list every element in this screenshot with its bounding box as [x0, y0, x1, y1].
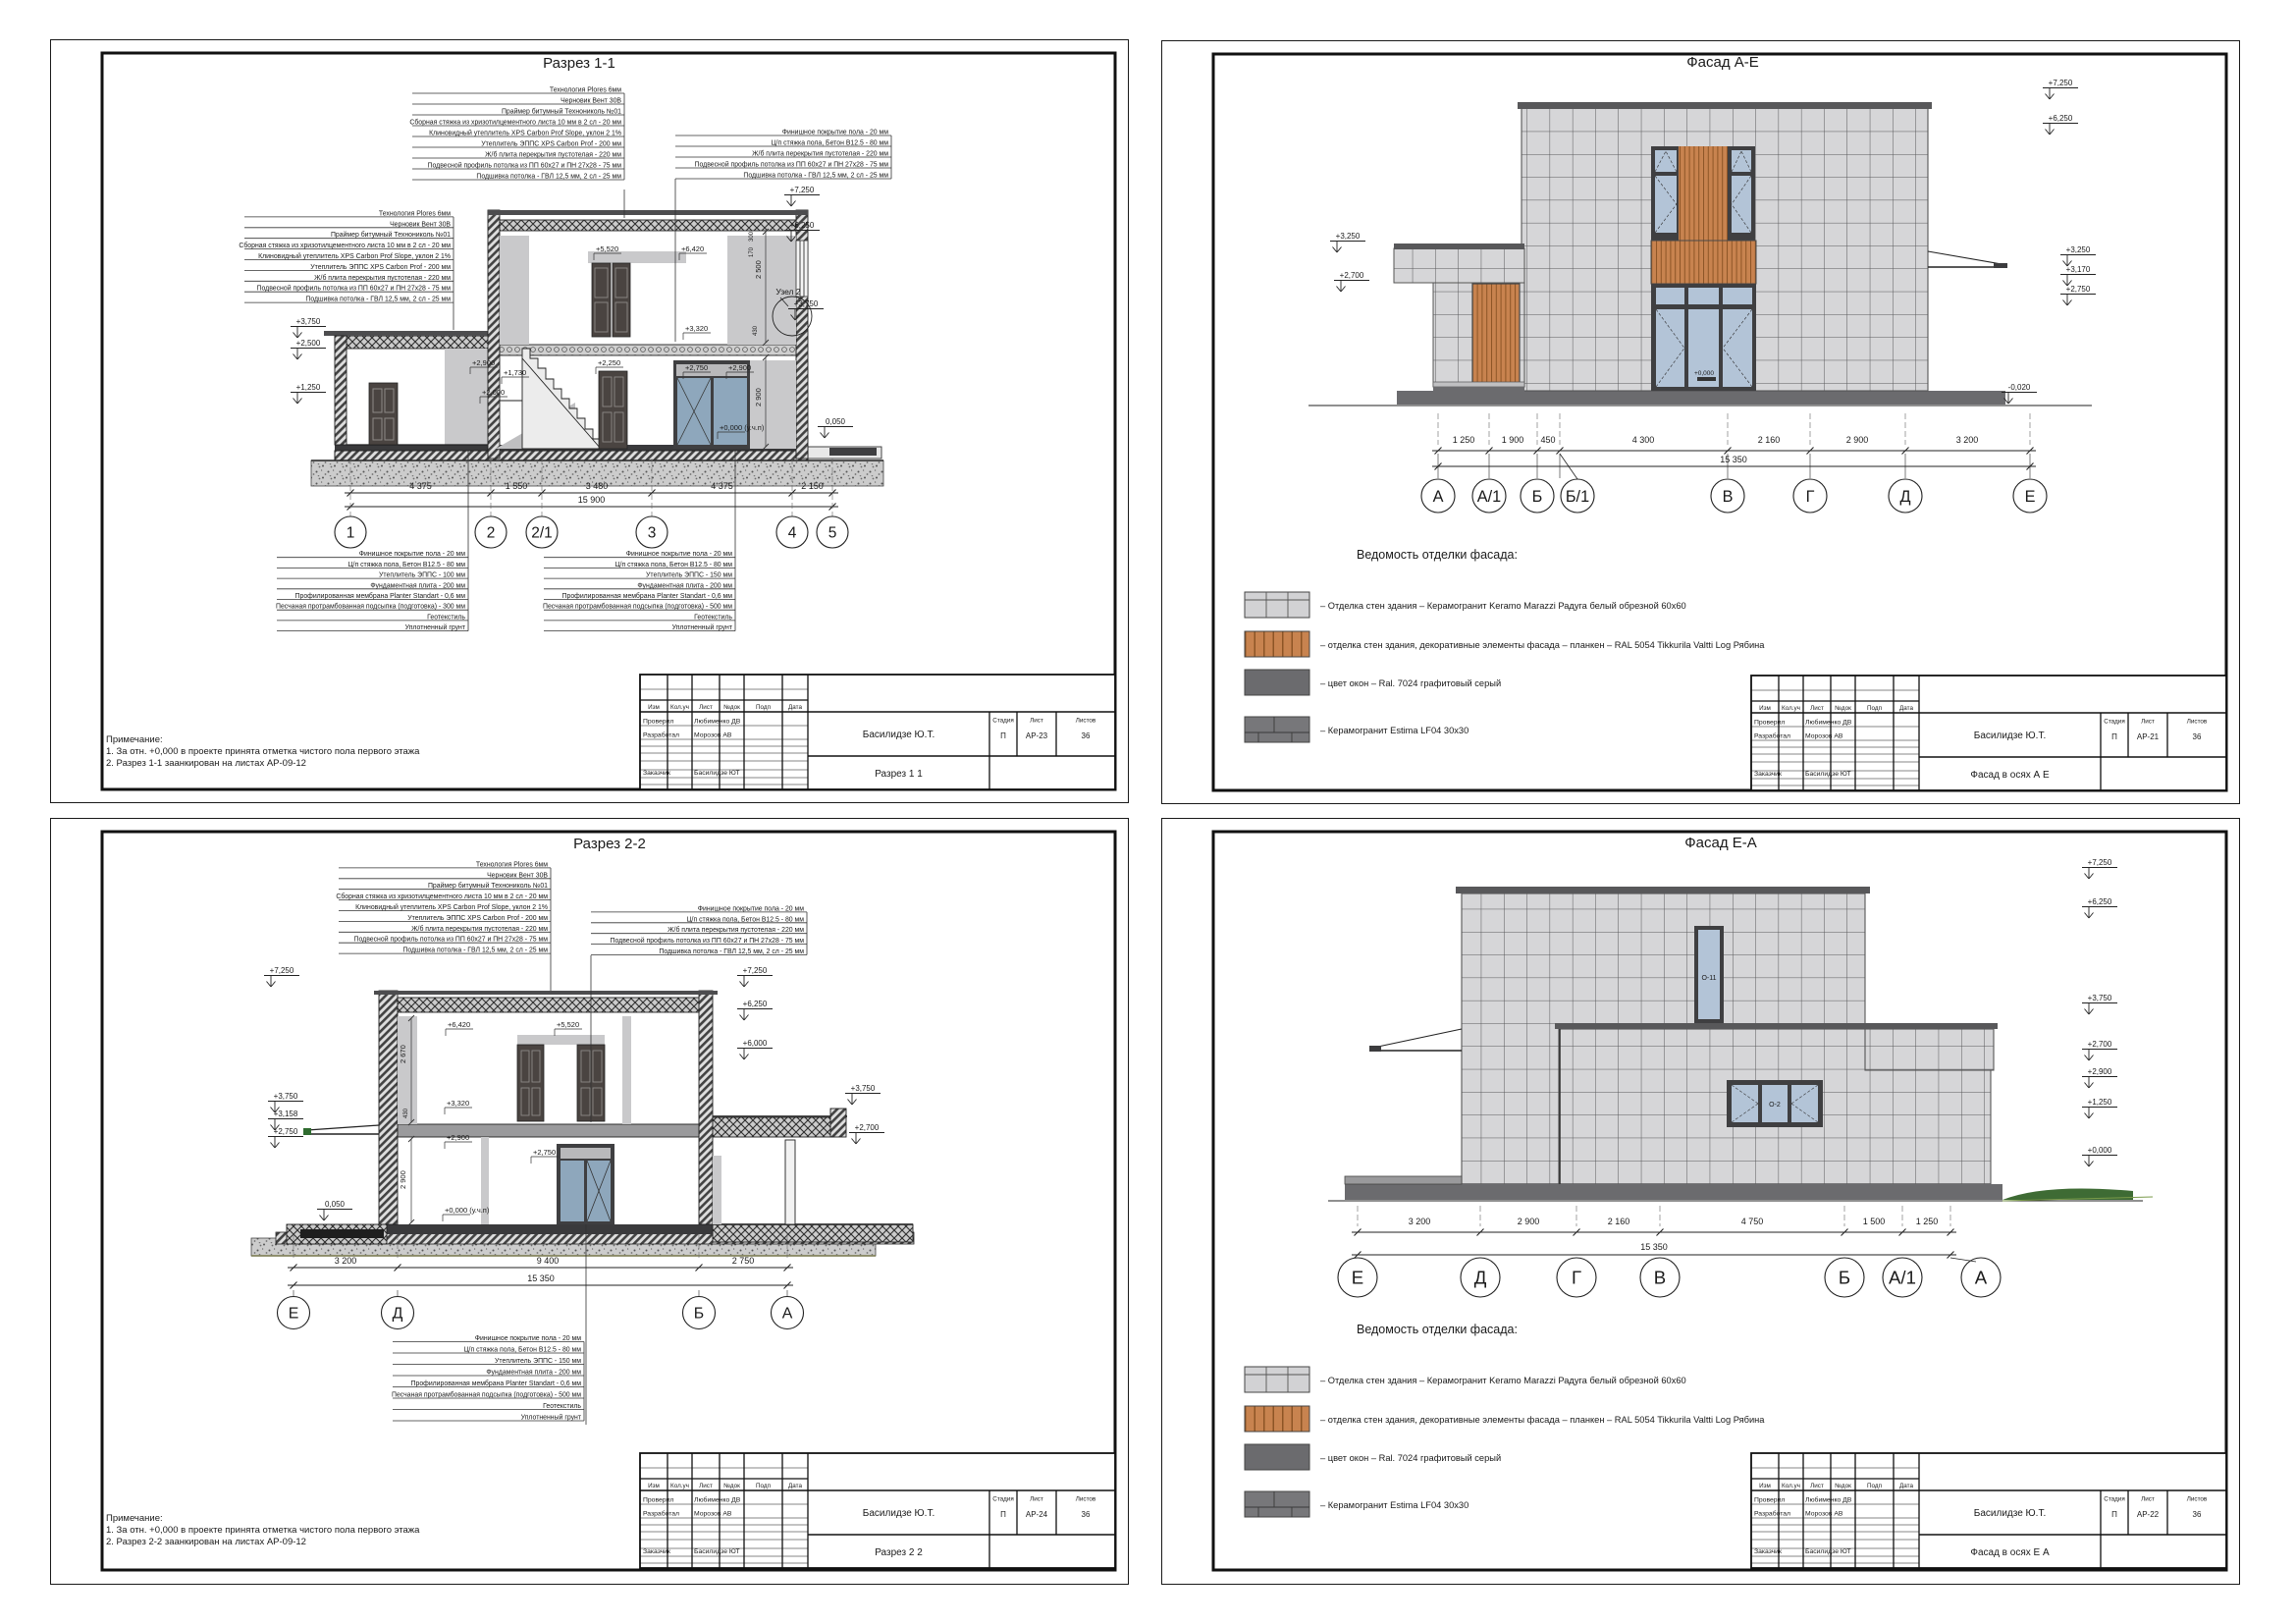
svg-text:1 550: 1 550 [506, 481, 528, 491]
svg-text:Узел 2: Узел 2 [775, 287, 800, 297]
svg-text:+2,750: +2,750 [685, 363, 708, 372]
svg-text:Басилидзе ЮТ: Басилидзе ЮТ [1805, 1548, 1851, 1555]
svg-text:Сборная стяжка из хризотилцеме: Сборная стяжка из хризотилцементного лис… [409, 119, 621, 127]
svg-text:Фасад в осях Е А: Фасад в осях Е А [1970, 1547, 2050, 1558]
svg-text:Лист: Лист [1030, 718, 1043, 725]
svg-text:1. За отн. +0,000 в проекте пр: 1. За отн. +0,000 в проекте принята отме… [106, 1525, 420, 1536]
svg-text:О-11: О-11 [1701, 975, 1716, 982]
svg-text:2 150: 2 150 [801, 481, 824, 491]
svg-text:Разрез 2-2: Разрез 2-2 [573, 836, 646, 852]
svg-text:+2,900: +2,900 [2088, 1067, 2112, 1076]
svg-text:Подшивка потолка - ГВЛ 12,5 мм: Подшивка потолка - ГВЛ 12,5 мм, 2 сл - 2… [305, 297, 451, 303]
svg-text:Стадия: Стадия [992, 718, 1013, 725]
svg-text:АР-24: АР-24 [1026, 1510, 1048, 1519]
svg-text:Морозов АВ: Морозов АВ [694, 1511, 732, 1518]
svg-text:АР-21: АР-21 [2137, 732, 2160, 741]
svg-text:4: 4 [788, 525, 797, 542]
svg-text:Листов: Листов [2187, 1496, 2208, 1503]
svg-text:Любименко ДВ: Любименко ДВ [694, 1496, 741, 1504]
svg-text:Разрез 1 1: Разрез 1 1 [875, 769, 923, 780]
svg-text:П: П [1000, 731, 1006, 740]
svg-text:Разрез 2 2: Разрез 2 2 [875, 1547, 923, 1558]
svg-text:15 350: 15 350 [527, 1273, 555, 1283]
svg-text:Листов: Листов [1076, 1496, 1096, 1503]
svg-text:Фасад Е-А: Фасад Е-А [1684, 835, 1757, 851]
svg-text:+3,750: +3,750 [296, 317, 321, 326]
svg-text:Финишное покрытие пола - 20 мм: Финишное покрытие пола - 20 мм [698, 905, 804, 912]
svg-text:+2,750: +2,750 [274, 1127, 298, 1136]
svg-text:2 900: 2 900 [754, 388, 763, 406]
svg-text:3 480: 3 480 [586, 481, 609, 491]
svg-text:– отделка стен здания, декорат: – отделка стен здания, декоративные элем… [1320, 640, 1765, 650]
svg-text:Разработал: Разработал [643, 731, 679, 739]
svg-text:Проверил: Проверил [1754, 720, 1785, 727]
svg-text:Подшивка потолка - ГВЛ 12,5 мм: Подшивка потолка - ГВЛ 12,5 мм, 2 сл - 2… [659, 948, 804, 955]
svg-text:Заказчик: Заказчик [643, 770, 670, 777]
svg-text:430: 430 [403, 1108, 409, 1118]
svg-text:Кол.уч: Кол.уч [670, 704, 689, 711]
svg-text:36: 36 [2193, 732, 2202, 741]
svg-text:Дата: Дата [788, 704, 802, 711]
svg-text:2. Разрез 1-1 заанкирован на л: 2. Разрез 1-1 заанкирован на листах АР-0… [106, 758, 306, 769]
svg-text:2 160: 2 160 [1758, 435, 1781, 445]
svg-text:4 375: 4 375 [711, 481, 733, 491]
svg-text:+6,420: +6,420 [448, 1020, 470, 1029]
svg-text:Б/1: Б/1 [1566, 488, 1589, 506]
svg-text:+7,250: +7,250 [270, 966, 294, 975]
svg-text:+1,250: +1,250 [296, 383, 321, 392]
svg-text:1 500: 1 500 [1863, 1217, 1886, 1226]
svg-text:1: 1 [347, 525, 355, 542]
svg-text:+3,250: +3,250 [2066, 245, 2091, 254]
svg-text:Разработал: Разработал [1754, 732, 1790, 740]
svg-text:– цвет окон – Ral. 7024 графит: – цвет окон – Ral. 7024 графитовый серый [1320, 678, 1501, 688]
svg-text:Изм: Изм [648, 1483, 660, 1489]
svg-text:Финишное покрытие пола - 20 мм: Финишное покрытие пола - 20 мм [626, 551, 732, 558]
svg-text:Праймер битумный Технониколь №: Праймер битумный Технониколь №01 [428, 882, 548, 890]
svg-text:– Отделка стен здания – Керамо: – Отделка стен здания – Керамогранит Ker… [1320, 1376, 1686, 1385]
svg-text:Черновик Вент 30В: Черновик Вент 30В [561, 98, 621, 105]
svg-text:Геотекстиль: Геотекстиль [543, 1403, 581, 1410]
svg-text:Подп: Подп [756, 1483, 771, 1489]
svg-text:Е: Е [2025, 488, 2036, 506]
svg-text:Ж/б плита перекрытия пустотела: Ж/б плита перекрытия пустотелая - 220 мм [314, 274, 451, 282]
svg-text:Лист: Лист [699, 1483, 713, 1489]
svg-text:№док: №док [723, 704, 740, 711]
svg-text:9 400: 9 400 [537, 1256, 560, 1266]
svg-text:О-2: О-2 [1769, 1102, 1781, 1109]
svg-text:Утеплитель ЭППС - 150 мм: Утеплитель ЭППС - 150 мм [646, 572, 732, 579]
svg-text:Фундаментная плита - 200 мм: Фундаментная плита - 200 мм [637, 582, 732, 589]
svg-text:Технология Plores 6мм: Технология Plores 6мм [476, 861, 548, 868]
svg-text:Профилированная мембрана Plant: Профилированная мембрана Planter Standar… [562, 592, 733, 600]
svg-text:Кол.уч: Кол.уч [670, 1483, 689, 1489]
svg-text:Геотекстиль: Геотекстиль [694, 614, 732, 621]
svg-text:Фасад в осях А Е: Фасад в осях А Е [1970, 770, 2050, 781]
svg-text:Финишное покрытие пола - 20 мм: Финишное покрытие пола - 20 мм [782, 130, 888, 136]
svg-text:+2,700: +2,700 [855, 1123, 880, 1132]
svg-text:АР-23: АР-23 [1026, 731, 1048, 740]
svg-text:Примечание:: Примечание: [106, 734, 163, 745]
svg-text:Уплотненный грунт: Уплотненный грунт [672, 623, 733, 631]
svg-text:Морозов АВ: Морозов АВ [1805, 733, 1843, 740]
svg-text:Ж/б плита перекрытия пустотела: Ж/б плита перекрытия пустотелая - 220 мм [752, 150, 888, 158]
svg-text:2 900: 2 900 [1518, 1217, 1540, 1226]
svg-text:Разрез 1-1: Разрез 1-1 [543, 55, 615, 72]
svg-text:+2,250: +2,250 [598, 358, 620, 367]
svg-text:2: 2 [487, 525, 496, 542]
svg-text:– цвет окон – Ral. 7024 графит: – цвет окон – Ral. 7024 графитовый серый [1320, 1453, 1501, 1463]
svg-text:3 200: 3 200 [335, 1256, 357, 1266]
svg-text:15 900: 15 900 [578, 495, 606, 505]
svg-text:Заказчик: Заказчик [1754, 771, 1782, 778]
svg-text:Кол.уч: Кол.уч [1782, 705, 1800, 712]
svg-text:+3,320: +3,320 [685, 324, 708, 333]
svg-text:Басилидзе ЮТ: Басилидзе ЮТ [694, 1548, 740, 1555]
svg-text:Примечание:: Примечание: [106, 1513, 163, 1524]
svg-text:Ведомость отделки фасада:: Ведомость отделки фасада: [1357, 1323, 1518, 1336]
svg-text:+3,750: +3,750 [274, 1092, 298, 1101]
svg-text:Е: Е [1352, 1268, 1363, 1288]
svg-text:+0,000 (у.ч.п): +0,000 (у.ч.п) [720, 423, 765, 432]
svg-text:36: 36 [1082, 731, 1091, 740]
svg-text:+2,000: +2,000 [482, 388, 505, 397]
svg-text:+2,900: +2,900 [728, 363, 751, 372]
svg-text:Ц/п стяжка пола, Бетон В12.5 -: Ц/п стяжка пола, Бетон В12.5 - 80 мм [771, 140, 888, 147]
svg-text:Сборная стяжка из хризотилцеме: Сборная стяжка из хризотилцементного лис… [336, 893, 548, 900]
svg-text:Песчаная протрамбованная подсы: Песчаная протрамбованная подсыпка (подго… [392, 1391, 581, 1399]
svg-text:2. Разрез 2-2 заанкирован на л: 2. Разрез 2-2 заанкирован на листах АР-0… [106, 1537, 306, 1547]
svg-text:Ж/б плита перекрытия пустотела: Ж/б плита перекрытия пустотелая - 220 мм [485, 151, 621, 159]
svg-text:В: В [1723, 488, 1734, 506]
svg-text:Изм: Изм [1759, 705, 1771, 712]
svg-text:+3,750: +3,750 [851, 1084, 876, 1093]
svg-text:Клиновидный утеплитель XPS Car: Клиновидный утеплитель XPS Carbon Prof S… [429, 130, 621, 137]
svg-text:+2,700: +2,700 [2088, 1040, 2112, 1049]
svg-text:Басилидзе ЮТ: Басилидзе ЮТ [1805, 771, 1851, 778]
svg-text:Г: Г [1572, 1268, 1581, 1288]
svg-text:+2,500: +2,500 [296, 339, 321, 348]
svg-text:Любименко ДВ: Любименко ДВ [694, 718, 741, 726]
svg-text:Финишное покрытие пола - 20 мм: Финишное покрытие пола - 20 мм [359, 551, 465, 558]
svg-text:Лист: Лист [2141, 1496, 2155, 1503]
svg-text:Финишное покрытие пола - 20 мм: Финишное покрытие пола - 20 мм [475, 1335, 581, 1342]
svg-text:+6,250: +6,250 [2049, 114, 2073, 123]
svg-text:Утеплитель ЭППС - 100 мм: Утеплитель ЭППС - 100 мм [379, 572, 465, 579]
svg-text:Стадия: Стадия [992, 1496, 1013, 1503]
svg-text:Подп: Подп [1867, 1483, 1882, 1489]
svg-text:Басилидзе Ю.Т.: Басилидзе Ю.Т. [863, 1508, 934, 1519]
svg-text:Клиновидный утеплитель XPS Car: Клиновидный утеплитель XPS Carbon Prof S… [258, 252, 451, 260]
svg-text:1 250: 1 250 [1916, 1217, 1939, 1226]
svg-text:Лист: Лист [699, 704, 713, 711]
svg-text:Черновик Вент 30В: Черновик Вент 30В [390, 221, 451, 228]
svg-text:Дата: Дата [788, 1483, 802, 1489]
svg-text:Утеплитель ЭППС XPS Carbon Pro: Утеплитель ЭППС XPS Carbon Prof - 200 мм [310, 264, 451, 271]
svg-text:А/1: А/1 [1889, 1268, 1916, 1288]
svg-text:Фундаментная плита - 200 мм: Фундаментная плита - 200 мм [486, 1370, 581, 1377]
svg-text:Подп: Подп [756, 704, 771, 711]
svg-text:А: А [782, 1306, 793, 1323]
svg-text:П: П [2111, 1510, 2117, 1519]
svg-text:Разработал: Разработал [643, 1510, 679, 1518]
svg-text:Подшивка потолка - ГВЛ 12,5 мм: Подшивка потолка - ГВЛ 12,5 мм, 2 сл - 2… [743, 173, 888, 180]
svg-text:+7,250: +7,250 [2088, 858, 2112, 867]
svg-text:Ц/п стяжка пола, Бетон В12.5 -: Ц/п стяжка пола, Бетон В12.5 - 80 мм [686, 916, 804, 923]
svg-text:+7,250: +7,250 [743, 966, 768, 975]
svg-text:Лист: Лист [2141, 719, 2155, 726]
svg-text:Праймер битумный Технониколь №: Праймер битумный Технониколь №01 [502, 108, 621, 116]
svg-text:3 200: 3 200 [1409, 1217, 1431, 1226]
svg-text:Е: Е [289, 1306, 299, 1323]
svg-text:Басилидзе Ю.Т.: Басилидзе Ю.Т. [1974, 1508, 2046, 1519]
svg-text:Уплотненный грунт: Уплотненный грунт [521, 1414, 582, 1422]
svg-text:Разработал: Разработал [1754, 1510, 1790, 1518]
svg-text:4 375: 4 375 [409, 481, 432, 491]
svg-text:+6,420: +6,420 [681, 244, 704, 253]
svg-text:+0,000: +0,000 [1694, 370, 1714, 377]
svg-text:Ж/б плита перекрытия пустотела: Ж/б плита перекрытия пустотелая - 220 мм [667, 926, 804, 934]
svg-text:П: П [2111, 732, 2117, 741]
svg-text:Листов: Листов [1076, 718, 1096, 725]
svg-text:Заказчик: Заказчик [643, 1548, 670, 1555]
svg-text:Стадия: Стадия [2104, 719, 2124, 726]
svg-text:Д: Д [1474, 1268, 1487, 1288]
svg-text:Изм: Изм [1759, 1483, 1771, 1489]
svg-text:А: А [1433, 488, 1444, 506]
svg-text:Лист: Лист [1810, 705, 1824, 712]
svg-text:Изм: Изм [648, 704, 660, 711]
svg-text:170: 170 [749, 246, 755, 257]
svg-text:Д: Д [1899, 488, 1910, 506]
svg-text:Ц/п стяжка пола, Бетон В12.5 -: Ц/п стяжка пола, Бетон В12.5 - 80 мм [463, 1347, 581, 1354]
svg-text:+3,158: +3,158 [274, 1110, 298, 1118]
svg-text:-0,020: -0,020 [2008, 383, 2031, 392]
svg-text:+2,700: +2,700 [1340, 271, 1364, 280]
svg-text:Ц/п стяжка пола, Бетон В12.5 -: Ц/п стяжка пола, Бетон В12.5 - 80 мм [347, 562, 465, 568]
svg-text:+3,250: +3,250 [1336, 232, 1361, 241]
svg-text:2 500: 2 500 [754, 260, 763, 279]
svg-text:+5,520: +5,520 [557, 1020, 579, 1029]
svg-text:Лист: Лист [1030, 1496, 1043, 1503]
svg-text:Клиновидный утеплитель XPS Car: Клиновидный утеплитель XPS Carbon Prof S… [355, 903, 548, 911]
svg-text:Б: Б [1839, 1268, 1850, 1288]
svg-text:Любименко ДВ: Любименко ДВ [1805, 719, 1852, 727]
svg-text:+2,900: +2,900 [447, 1133, 469, 1142]
svg-text:Черновик Вент 30В: Черновик Вент 30В [487, 872, 548, 879]
svg-text:Сборная стяжка из хризотилцеме: Сборная стяжка из хризотилцементного лис… [239, 242, 451, 249]
svg-text:Песчаная протрамбованная подсы: Песчаная протрамбованная подсыпка (подго… [543, 603, 732, 611]
svg-text:+6,000: +6,000 [743, 1039, 768, 1048]
svg-text:+3,170: +3,170 [2066, 265, 2091, 274]
svg-text:А/1: А/1 [1477, 488, 1501, 506]
svg-text:+0,000: +0,000 [2088, 1146, 2112, 1155]
svg-text:Подвесной профиль потолка из П: Подвесной профиль потолка из ПП 60х27 и … [257, 285, 452, 293]
svg-text:Дата: Дата [1899, 1483, 1913, 1489]
svg-text:Фундаментная плита - 200 мм: Фундаментная плита - 200 мм [370, 582, 465, 589]
svg-text:П: П [1000, 1510, 1006, 1519]
svg-text:Подшивка потолка - ГВЛ 12,5 мм: Подшивка потолка - ГВЛ 12,5 мм, 2 сл - 2… [402, 947, 548, 954]
svg-text:Г: Г [1806, 488, 1815, 506]
svg-text:Проверил: Проверил [643, 719, 673, 726]
svg-text:№док: №док [1835, 705, 1851, 712]
svg-text:Ведомость отделки фасада:: Ведомость отделки фасада: [1357, 548, 1518, 562]
svg-text:36: 36 [2193, 1510, 2202, 1519]
svg-text:+2,900: +2,900 [472, 358, 495, 367]
svg-text:Утеплитель ЭППС XPS Carbon Pro: Утеплитель ЭППС XPS Carbon Prof - 200 мм [481, 141, 621, 148]
svg-text:2 900: 2 900 [1846, 435, 1869, 445]
svg-text:Любименко ДВ: Любименко ДВ [1805, 1496, 1852, 1504]
svg-text:2/1: 2/1 [531, 525, 553, 542]
svg-text:0,050: 0,050 [826, 417, 846, 426]
svg-text:Проверил: Проверил [1754, 1497, 1785, 1504]
svg-text:300: 300 [749, 231, 755, 242]
svg-text:2 670: 2 670 [399, 1045, 407, 1063]
svg-text:Подвесной профиль потолка из П: Подвесной профиль потолка из ПП 60х27 и … [428, 162, 622, 170]
svg-text:Листов: Листов [2187, 719, 2208, 726]
svg-text:– Керамогранит Estima LF04 30х: – Керамогранит Estima LF04 30х30 [1320, 1500, 1468, 1510]
svg-text:Подвесной профиль потолка из П: Подвесной профиль потолка из ПП 60х27 и … [611, 937, 805, 945]
svg-text:+2,750: +2,750 [2066, 285, 2091, 294]
svg-text:Морозов АВ: Морозов АВ [1805, 1511, 1843, 1518]
svg-text:2 160: 2 160 [1608, 1217, 1630, 1226]
svg-text:+6,250: +6,250 [2088, 897, 2112, 906]
svg-text:430: 430 [753, 325, 759, 336]
svg-text:Ж/б плита перекрытия пустотела: Ж/б плита перекрытия пустотелая - 220 мм [411, 925, 548, 933]
svg-text:Песчаная протрамбованная подсы: Песчаная протрамбованная подсыпка (подго… [276, 603, 465, 611]
svg-text:Басилидзе Ю.Т.: Басилидзе Ю.Т. [1974, 731, 2046, 741]
svg-text:Басилидзе ЮТ: Басилидзе ЮТ [694, 770, 740, 777]
svg-text:Проверил: Проверил [643, 1497, 673, 1504]
svg-text:0,050: 0,050 [325, 1200, 346, 1209]
svg-text:36: 36 [1082, 1510, 1091, 1519]
svg-text:+3,750: +3,750 [2088, 994, 2112, 1002]
svg-text:Дата: Дата [1899, 705, 1913, 712]
svg-text:1 250: 1 250 [1453, 435, 1475, 445]
svg-text:Морозов АВ: Морозов АВ [694, 732, 732, 739]
svg-text:15 350: 15 350 [1720, 455, 1747, 464]
svg-text:2 750: 2 750 [732, 1256, 755, 1266]
svg-text:Лист: Лист [1810, 1483, 1824, 1489]
svg-text:Кол.уч: Кол.уч [1782, 1483, 1800, 1489]
svg-text:№док: №док [1835, 1483, 1851, 1489]
svg-text:Уплотненный грунт: Уплотненный грунт [405, 623, 466, 631]
svg-text:Технология Plores 6мм: Технология Plores 6мм [379, 210, 451, 217]
svg-text:+6,250: +6,250 [743, 1000, 768, 1008]
svg-text:Басилидзе Ю.Т.: Басилидзе Ю.Т. [863, 730, 934, 740]
svg-text:1 900: 1 900 [1502, 435, 1524, 445]
svg-text:15 350: 15 350 [1640, 1242, 1668, 1252]
svg-text:А: А [1975, 1268, 1988, 1288]
svg-text:Профилированная мембрана Plant: Профилированная мембрана Planter Standar… [295, 592, 466, 600]
svg-text:1. За отн. +0,000 в проекте пр: 1. За отн. +0,000 в проекте принята отме… [106, 746, 420, 757]
svg-text:+7,250: +7,250 [790, 186, 815, 194]
svg-text:Б: Б [694, 1306, 704, 1323]
svg-text:В: В [1654, 1268, 1666, 1288]
svg-text:5: 5 [828, 525, 837, 542]
svg-text:Б: Б [1532, 488, 1543, 506]
svg-text:+6,250: +6,250 [790, 221, 815, 230]
svg-text:– отделка стен здания, декорат: – отделка стен здания, декоративные элем… [1320, 1415, 1765, 1425]
svg-text:+5,520: +5,520 [596, 244, 618, 253]
svg-text:Подп: Подп [1867, 705, 1882, 712]
svg-text:+2,750: +2,750 [533, 1148, 556, 1157]
svg-text:450: 450 [1540, 435, 1555, 445]
svg-text:Подвесной профиль потолка из П: Подвесной профиль потолка из ПП 60х27 и … [354, 936, 549, 944]
svg-text:Утеплитель ЭППС - 150 мм: Утеплитель ЭППС - 150 мм [495, 1358, 581, 1365]
svg-text:3 200: 3 200 [1956, 435, 1979, 445]
svg-text:+1,250: +1,250 [2088, 1098, 2112, 1107]
svg-text:+7,250: +7,250 [2049, 79, 2073, 87]
svg-text:Технология Plores 6мм: Технология Plores 6мм [550, 87, 621, 94]
svg-text:3: 3 [648, 525, 657, 542]
svg-text:– Отделка стен здания – Керамо: – Отделка стен здания – Керамогранит Ker… [1320, 601, 1686, 611]
svg-text:+3,320: +3,320 [447, 1099, 469, 1108]
svg-text:Стадия: Стадия [2104, 1496, 2124, 1503]
svg-text:4 750: 4 750 [1741, 1217, 1764, 1226]
svg-text:Подвесной профиль потолка из П: Подвесной профиль потолка из ПП 60х27 и … [695, 161, 889, 169]
svg-text:Утеплитель ЭППС XPS Carbon Pro: Утеплитель ЭППС XPS Carbon Prof - 200 мм [407, 915, 548, 922]
svg-text:АР-22: АР-22 [2137, 1510, 2160, 1519]
svg-text:№док: №док [723, 1483, 740, 1489]
svg-text:+1,730: +1,730 [504, 368, 526, 377]
svg-text:+3,750: +3,750 [794, 299, 819, 308]
svg-text:Ц/п стяжка пола, Бетон В12.5 -: Ц/п стяжка пола, Бетон В12.5 - 80 мм [614, 562, 732, 568]
svg-text:Профилированная мембрана Plant: Профилированная мембрана Planter Standar… [411, 1380, 582, 1387]
svg-text:4 300: 4 300 [1632, 435, 1655, 445]
svg-text:2 900: 2 900 [399, 1170, 407, 1189]
svg-text:Заказчик: Заказчик [1754, 1548, 1782, 1555]
svg-text:– Керамогранит Estima LF04 30х: – Керамогранит Estima LF04 30х30 [1320, 726, 1468, 735]
svg-text:Геотекстиль: Геотекстиль [427, 614, 465, 621]
svg-text:Фасад А-Е: Фасад А-Е [1686, 54, 1759, 71]
svg-text:Д: Д [393, 1306, 403, 1323]
svg-text:+0,000 (у.ч.п): +0,000 (у.ч.п) [445, 1206, 490, 1215]
svg-text:Праймер битумный Технониколь №: Праймер битумный Технониколь №01 [331, 231, 451, 239]
svg-text:Подшивка потолка - ГВЛ 12,5 мм: Подшивка потолка - ГВЛ 12,5 мм, 2 сл - 2… [476, 174, 621, 181]
